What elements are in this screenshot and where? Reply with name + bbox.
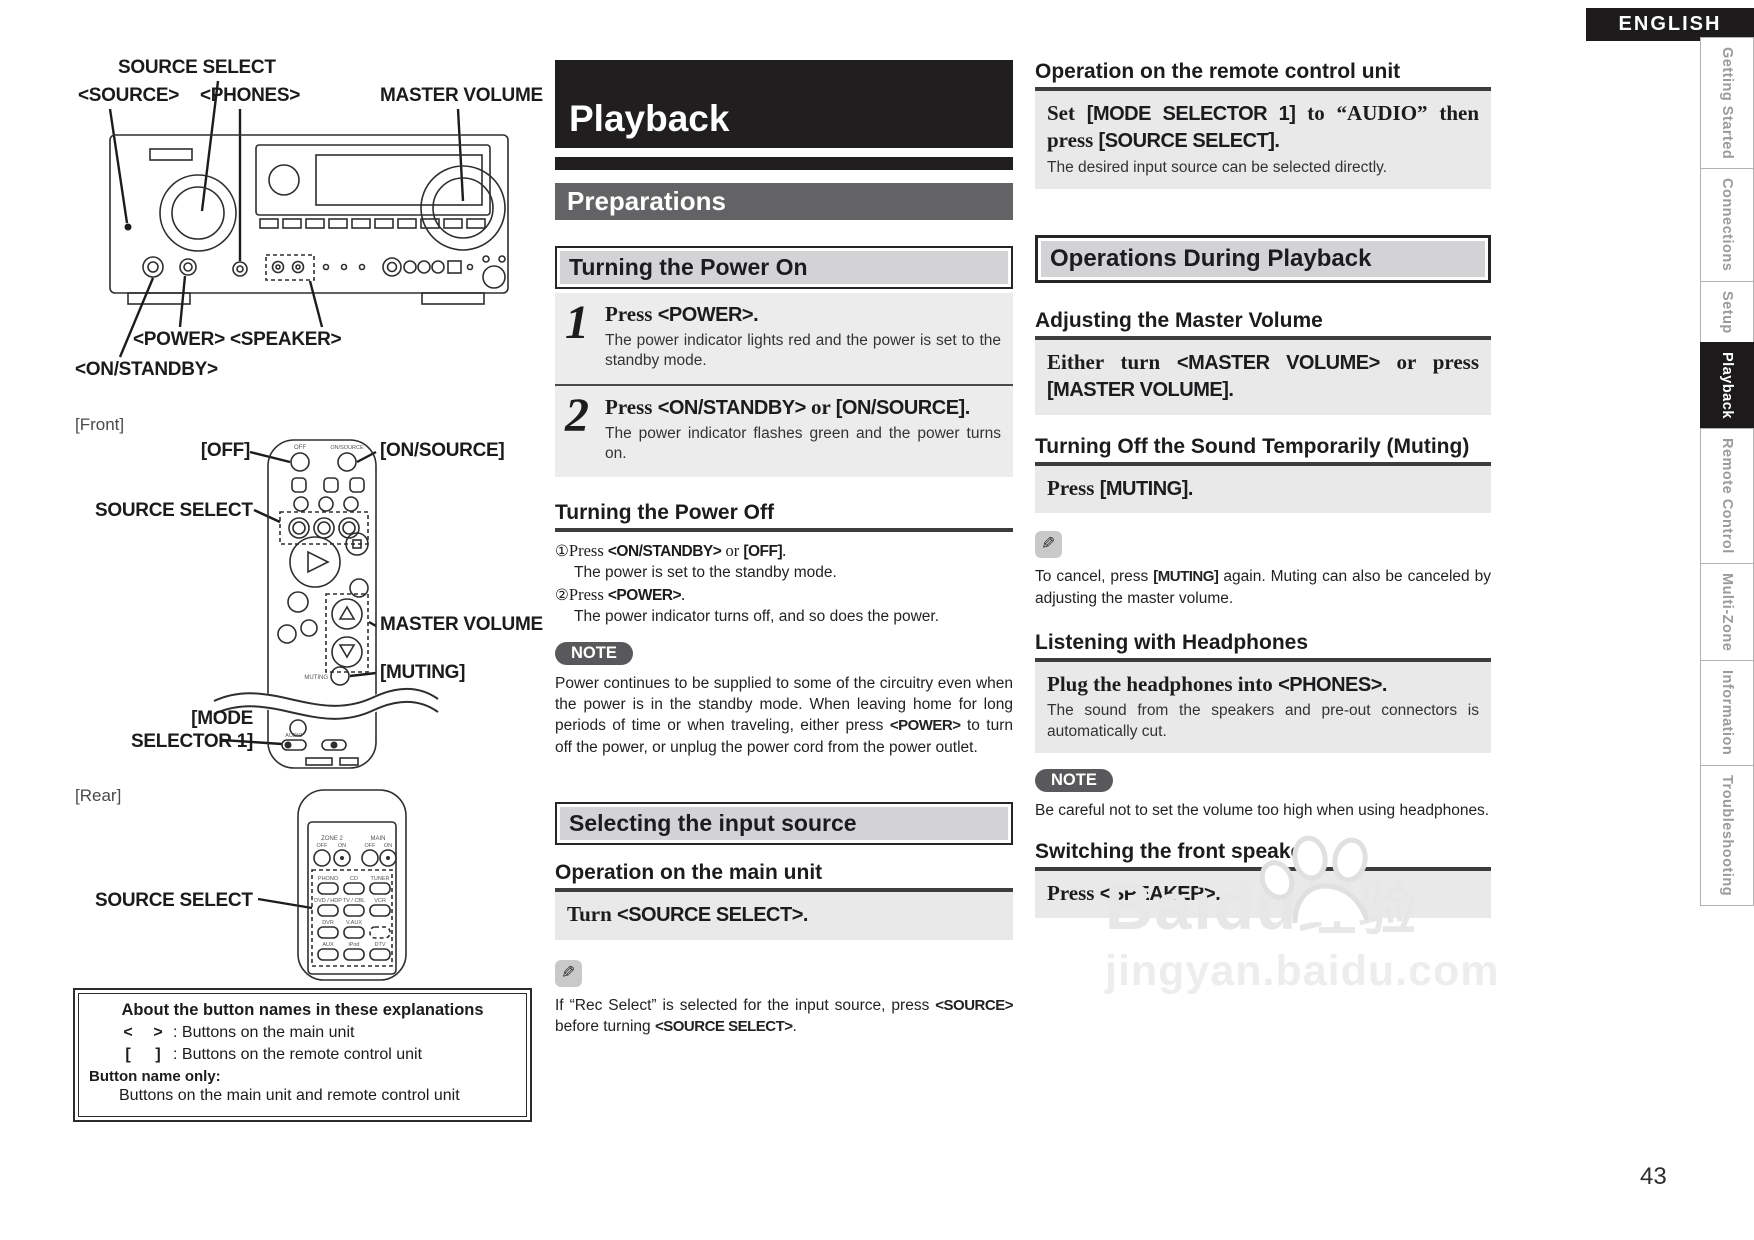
turn-source-select-box: Turn <SOURCE SELECT>.: [555, 892, 1013, 939]
remote-audio-caption: AUDIO: [285, 733, 303, 739]
heading-remote-unit: Operation on the remote control unit: [1035, 60, 1491, 91]
mode-selector-box: Set [MODE SELECTOR 1] to “AUDIO” then pr…: [1035, 91, 1491, 189]
rear-source-label: PHONO: [318, 876, 339, 882]
right-column: Operation on the remote control unit Set…: [1035, 60, 1491, 918]
power-off-item-1: ①Press <ON/STANDBY> or [OFF].: [555, 540, 1013, 563]
power-off-list: ①Press <ON/STANDBY> or [OFF]. The power …: [555, 540, 1013, 628]
label-muting-button: [MUTING]: [380, 662, 465, 684]
about-row-main-unit: < > : Buttons on the main unit: [113, 1024, 516, 1042]
tab-playback: Playback: [1700, 342, 1754, 429]
label-on-source-button: [ON/SOURCE]: [380, 440, 504, 462]
label-master-volume-knob: MASTER VOLUME: [380, 85, 543, 107]
step-2: 2 Press <ON/STANDBY> or [ON/SOURCE]. The…: [555, 384, 1013, 477]
rear-off-caption: OFF: [365, 843, 377, 849]
chapter-title-bar: Playback: [555, 60, 1013, 148]
about-only-desc: Buttons on the main unit and remote cont…: [119, 1087, 516, 1105]
rear-source-label: iPod: [348, 942, 359, 948]
heading-power-off: Turning the Power Off: [555, 501, 1013, 532]
rear-source-label: DVD / HDP: [314, 898, 342, 904]
chapter-rule: [555, 157, 1013, 170]
tab-connections: Connections: [1700, 168, 1754, 281]
pencil-icon: [1035, 531, 1062, 558]
label-source-select-knob: SOURCE SELECT: [118, 57, 276, 79]
tab-information: Information: [1700, 660, 1754, 765]
label-off-button: [OFF]: [130, 440, 250, 462]
heading-adjust-volume: Adjusting the Master Volume: [1035, 309, 1491, 340]
headphones-note: Be careful not to set the volume too hig…: [1035, 800, 1491, 821]
section-preparations: Preparations: [555, 183, 1013, 220]
about-title: About the button names in these explanat…: [89, 1001, 516, 1020]
rear-source-label: V.AUX: [346, 920, 362, 926]
tab-remote-control: Remote Control: [1700, 428, 1754, 564]
rear-source-label: TUNER: [371, 876, 390, 882]
heading-front-speakers: Switching the front speakers: [1035, 840, 1491, 871]
manual-page: ENGLISH: [0, 0, 1754, 1240]
rear-on-caption: ON: [338, 843, 346, 849]
page-number: 43: [1640, 1163, 1667, 1191]
rear-tag: [Rear]: [75, 786, 121, 806]
watermark-url: jingyan.baidu.com: [1105, 947, 1525, 996]
about-row-remote-unit: [ ] : Buttons on the remote control unit: [113, 1046, 516, 1064]
tab-multi-zone: Multi-Zone: [1700, 563, 1754, 661]
heading-muting: Turning Off the Sound Temporarily (Mutin…: [1035, 435, 1491, 466]
tab-getting-started: Getting Started: [1700, 37, 1754, 169]
rear-source-label: VCR: [374, 898, 386, 904]
note-badge: NOTE: [1035, 769, 1113, 792]
rear-source-label: TV / CBL: [343, 898, 365, 904]
rear-source-label: AUX: [322, 942, 334, 948]
rec-select-tip: If “Rec Select” is selected for the inpu…: [555, 995, 1013, 1038]
remote-off-caption: OFF: [294, 445, 306, 451]
power-off-item-2: ②Press <POWER>.: [555, 584, 1013, 607]
muting-tip: To cancel, press [MUTING] again. Muting …: [1035, 566, 1491, 609]
receiver-diagram: SOURCE SELECT <SOURCE> <PHONES> MASTER V…: [70, 55, 550, 405]
about-button-names-box: About the button names in these explanat…: [73, 988, 532, 1122]
label-remote-master-volume: MASTER VOLUME: [380, 614, 543, 636]
speaker-box: Press <SPEAKER>.: [1035, 871, 1491, 918]
power-on-steps: 1 Press <POWER>. The power indicator lig…: [555, 293, 1013, 477]
rear-source-label: CD: [350, 876, 358, 882]
label-phones-jack: <PHONES>: [200, 85, 300, 107]
note-badge: NOTE: [555, 642, 633, 665]
remote-front-diagram: OFF ON/SOURCE MUTING AUDIO [Front] [OFF]…: [70, 410, 550, 776]
label-remote-source-select: SOURCE SELECT: [95, 500, 253, 522]
subsection-input-source: Selecting the input source: [555, 802, 1013, 845]
tab-setup: Setup: [1700, 281, 1754, 344]
subsection-power-on: Turning the Power On: [555, 246, 1013, 289]
label-source-button: <SOURCE>: [78, 85, 179, 107]
rear-source-label: DVR: [322, 920, 334, 926]
rear-on-caption: ON: [384, 843, 392, 849]
muting-box: Press [MUTING].: [1035, 466, 1491, 513]
headphones-box: Plug the headphones into <PHONES>. The s…: [1035, 662, 1491, 753]
label-on-standby-button: <ON/STANDBY>: [75, 359, 218, 381]
label-power-button: <POWER>: [133, 329, 225, 351]
power-note-text: Power continues to be supplied to some o…: [555, 673, 1013, 759]
heading-main-unit: Operation on the main unit: [555, 861, 1013, 892]
remote-muting-caption: MUTING: [304, 675, 328, 681]
pencil-icon: [555, 960, 582, 987]
rear-main-caption: MAIN: [371, 836, 386, 842]
label-speaker-button: <SPEAKER>: [230, 329, 341, 351]
master-volume-box: Either turn <MASTER VOLUME> or press [MA…: [1035, 340, 1491, 415]
rear-zone2-caption: ZONE 2: [321, 836, 343, 842]
remote-rear-drawing: ZONE 2 MAIN OFF ON OFF ON PHONO CD TUNER…: [70, 778, 550, 982]
rear-off-caption: OFF: [317, 843, 329, 849]
chapter-tabs: Getting Started Connections Setup Playba…: [1700, 38, 1754, 906]
label-rear-source-select: SOURCE SELECT: [95, 890, 253, 912]
about-only-label: Button name only:: [89, 1068, 516, 1085]
subsection-operations-during-playback: Operations During Playback: [1035, 235, 1491, 283]
front-tag: [Front]: [75, 415, 124, 435]
label-mode-selector: [MODE SELECTOR 1]: [125, 708, 253, 754]
remote-rear-diagram: ZONE 2 MAIN OFF ON OFF ON PHONO CD TUNER…: [70, 778, 550, 982]
tab-troubleshooting: Troubleshooting: [1700, 765, 1754, 906]
middle-column: Playback Preparations Turning the Power …: [555, 60, 1013, 1038]
receiver-front-panel-drawing: [70, 55, 550, 405]
heading-headphones: Listening with Headphones: [1035, 631, 1491, 662]
remote-on-source-caption: ON/SOURCE: [330, 445, 364, 451]
chapter-title: Playback: [569, 98, 729, 140]
step-1: 1 Press <POWER>. The power indicator lig…: [555, 293, 1013, 384]
rear-source-label: DTV: [375, 942, 386, 948]
